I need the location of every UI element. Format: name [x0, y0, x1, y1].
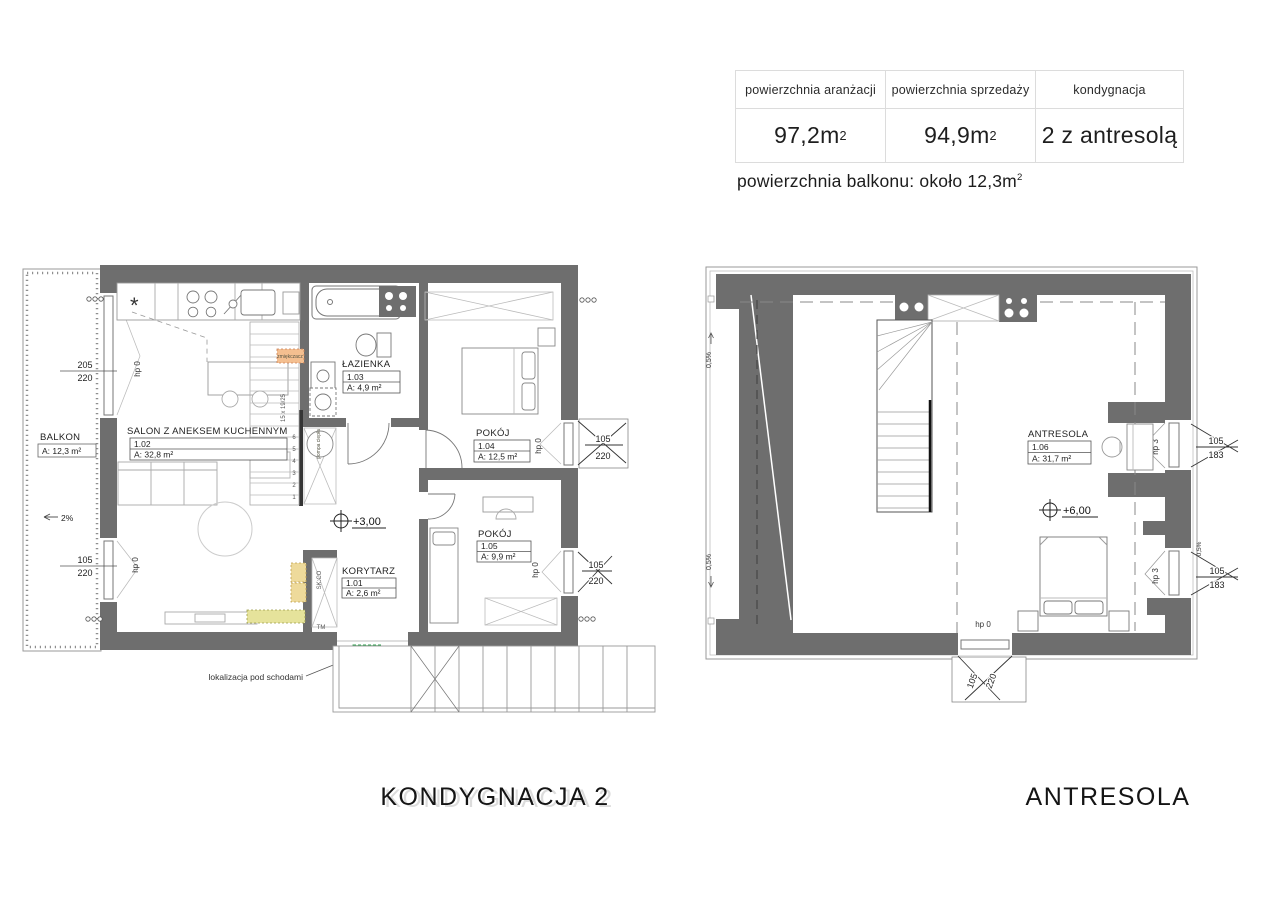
tm-label: TM	[317, 625, 326, 631]
svg-text:183: 183	[1209, 580, 1224, 590]
bath-sink	[311, 362, 335, 390]
antresola-name: ANTRESOLA	[1028, 429, 1089, 440]
svg-text:220: 220	[77, 568, 92, 578]
slope-label-2: 0,5%	[706, 554, 713, 570]
desk-antresola	[1102, 424, 1153, 470]
pokoj105-area: A: 9,9 m²	[481, 552, 516, 562]
bed-105	[430, 528, 458, 623]
skylight-boxes	[895, 293, 1037, 322]
header-kondygnacja: kondygnacja	[1036, 71, 1183, 109]
salon-no: 1.02	[134, 439, 151, 449]
value-powierzchnia-sprzedazy: 94,9m2	[885, 109, 1036, 162]
vent-skylight	[379, 286, 416, 317]
value-text: 97,2m	[774, 122, 839, 149]
antresola-area: A: 31,7 m²	[1032, 454, 1071, 464]
korytarz-name: KORYTARZ	[342, 566, 395, 577]
stair-number: 5	[292, 447, 296, 453]
pokoj105-name: POKÓJ	[478, 529, 512, 540]
toilet	[356, 333, 391, 357]
water-softener-label: zmiękczacz	[277, 354, 303, 360]
stair-dimension-note: 15 x 19/25	[281, 393, 287, 422]
desk-105	[483, 497, 533, 519]
value-text: 94,9m	[924, 122, 989, 149]
dim-right-bottom: 105 183 hp 3	[1151, 552, 1238, 595]
svg-text:hp 0: hp 0	[131, 557, 140, 573]
dim-right-104: 105 220 hp 0	[534, 419, 628, 468]
lazienka-name: ŁAZIENKA	[342, 359, 391, 370]
korytarz-no: 1.01	[346, 578, 363, 588]
lazienka-area: A: 4,9 m²	[347, 383, 382, 393]
stair-number: 2	[292, 483, 296, 489]
dim-right-top: 105 183 hp 3	[1151, 424, 1238, 467]
stairwell	[877, 320, 932, 512]
svg-text:220: 220	[77, 373, 92, 383]
svg-text:220: 220	[588, 576, 603, 586]
svg-text:205: 205	[77, 360, 92, 370]
korytarz-area: A: 2,6 m²	[346, 588, 381, 598]
stair-number: 6	[292, 435, 296, 441]
value-text: 2 z antresolą	[1042, 122, 1178, 149]
svg-text:105: 105	[588, 560, 603, 570]
svg-text:hp 3: hp 3	[1151, 568, 1160, 584]
tv-unit	[165, 612, 257, 624]
walls	[716, 274, 1191, 655]
svg-text:105: 105	[595, 434, 610, 444]
value-powierzchnia-aranzacji: 97,2m2	[736, 109, 885, 162]
svg-text:183: 183	[1208, 450, 1223, 460]
floorplan-sheet: powierzchnia aranżacji powierzchnia sprz…	[0, 0, 1280, 902]
slope-arrow	[44, 514, 58, 520]
svg-text:hp 0: hp 0	[133, 361, 142, 377]
slope-label-1: 0,5%	[706, 352, 713, 368]
plan-kondygnacja-2: *	[0, 250, 680, 730]
rug	[198, 502, 252, 556]
svg-text:hp 0: hp 0	[531, 562, 540, 578]
plan-title-kondygnacja-2: KONDYGNACJA 2	[345, 783, 645, 812]
balcony-area-note: powierzchnia balkonu: około 12,3m2	[737, 171, 1023, 192]
plan-antresola: 105 183 hp 3 105 183 hp 3 105 220 hp 0	[690, 250, 1240, 730]
wardrobe-105	[485, 598, 557, 625]
pokoj105-no: 1.05	[481, 541, 498, 551]
balkon-name: BALKON	[40, 432, 80, 443]
wardrobe-104	[425, 292, 553, 320]
note-text: powierzchnia balkonu: około 12,3m	[737, 171, 1017, 191]
fridge-icon: *	[130, 293, 139, 318]
under-stairs-label: lokalizacja pod schodami	[209, 672, 304, 682]
balcony-outline	[23, 269, 101, 651]
sofa	[118, 462, 217, 505]
kitchen-island	[208, 362, 288, 407]
slope-marks	[709, 333, 714, 587]
exterior-stairs	[333, 646, 655, 712]
pokoj104-no: 1.04	[478, 441, 495, 451]
svg-text:hp 0: hp 0	[975, 620, 991, 629]
salon-name: SALON Z ANEKSEM KUCHENNYM	[127, 426, 288, 437]
balkon-area: A: 12,3 m²	[42, 446, 81, 456]
value-kondygnacja: 2 z antresolą	[1036, 109, 1183, 162]
antresola-no: 1.06	[1032, 442, 1049, 452]
level-label: +3,00	[353, 516, 381, 528]
header-powierzchnia-sprzedazy: powierzchnia sprzedaży	[885, 71, 1036, 109]
bed-104	[462, 328, 555, 414]
heat-pump-label: pompa ciepła	[316, 429, 322, 459]
slope-label: 2%	[61, 513, 74, 523]
lazienka-no: 1.03	[347, 372, 364, 382]
svg-text:105: 105	[77, 555, 92, 565]
kitchen-counter	[117, 283, 300, 320]
closet	[312, 558, 337, 627]
bed-antresola	[1018, 537, 1129, 631]
summary-table: powierzchnia aranżacji powierzchnia sprz…	[735, 70, 1184, 163]
pokoj104-name: POKÓJ	[476, 428, 510, 439]
svg-text:105: 105	[1208, 436, 1223, 446]
level-label: +6,00	[1063, 505, 1091, 517]
washing-machine	[310, 388, 336, 416]
window-bottom: 105 220 hp 0	[952, 620, 1026, 702]
header-powierzchnia-aranzacji: powierzchnia aranżacji	[736, 71, 885, 109]
stair-number: 1	[292, 495, 296, 501]
salon-area: A: 32,8 m²	[134, 450, 173, 460]
svg-text:hp 0: hp 0	[534, 438, 543, 454]
closet-label: SK:CO	[317, 570, 323, 589]
note-sup: 2	[1017, 172, 1023, 183]
svg-text:220: 220	[595, 451, 610, 461]
plan-title-antresola: ANTRESOLA	[1008, 783, 1208, 812]
pokoj104-area: A: 12,5 m²	[478, 452, 517, 462]
corridor-wardrobe	[247, 563, 306, 623]
slope-label-3: 0,5%	[1196, 541, 1203, 556]
svg-text:105: 105	[1209, 566, 1224, 576]
